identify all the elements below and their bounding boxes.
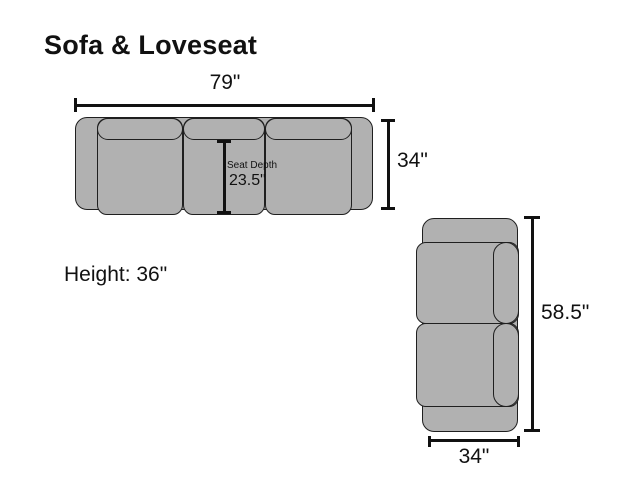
sofa-depth-label: 34" (397, 149, 428, 173)
sofa-back-cushion (265, 118, 352, 140)
sofa-back-cushion (183, 118, 265, 140)
seat-depth-label: Seat Depth (227, 160, 277, 171)
dimension-cap (74, 98, 77, 112)
page-title: Sofa & Loveseat (44, 30, 257, 61)
dimension-cap (217, 211, 231, 214)
sofa-back-cushion (97, 118, 183, 140)
loveseat-width-dimension-line (430, 439, 518, 442)
loveseat-back-cushion (493, 323, 519, 407)
loveseat-length-label: 58.5" (541, 301, 589, 325)
sofa-width-dimension-line (75, 104, 375, 107)
seat-depth-value: 23.5" (229, 172, 266, 190)
loveseat-width-label: 34" (430, 445, 518, 469)
sofa-depth-dimension-line (387, 121, 390, 209)
loveseat-length-dimension-line (531, 218, 534, 432)
dimension-cap (524, 429, 540, 432)
dimension-cap (217, 140, 231, 143)
height-note: Height: 36" (64, 263, 167, 287)
dimension-diagram: Sofa & Loveseat 79" Seat Depth 23.5" 34"… (0, 0, 620, 479)
dimension-cap (524, 216, 540, 219)
sofa-width-label: 79" (75, 71, 375, 95)
dimension-cap (381, 207, 395, 210)
seat-depth-dimension-line (223, 142, 226, 213)
loveseat-back-cushion (493, 242, 519, 324)
dimension-cap (381, 119, 395, 122)
dimension-cap (372, 98, 375, 112)
